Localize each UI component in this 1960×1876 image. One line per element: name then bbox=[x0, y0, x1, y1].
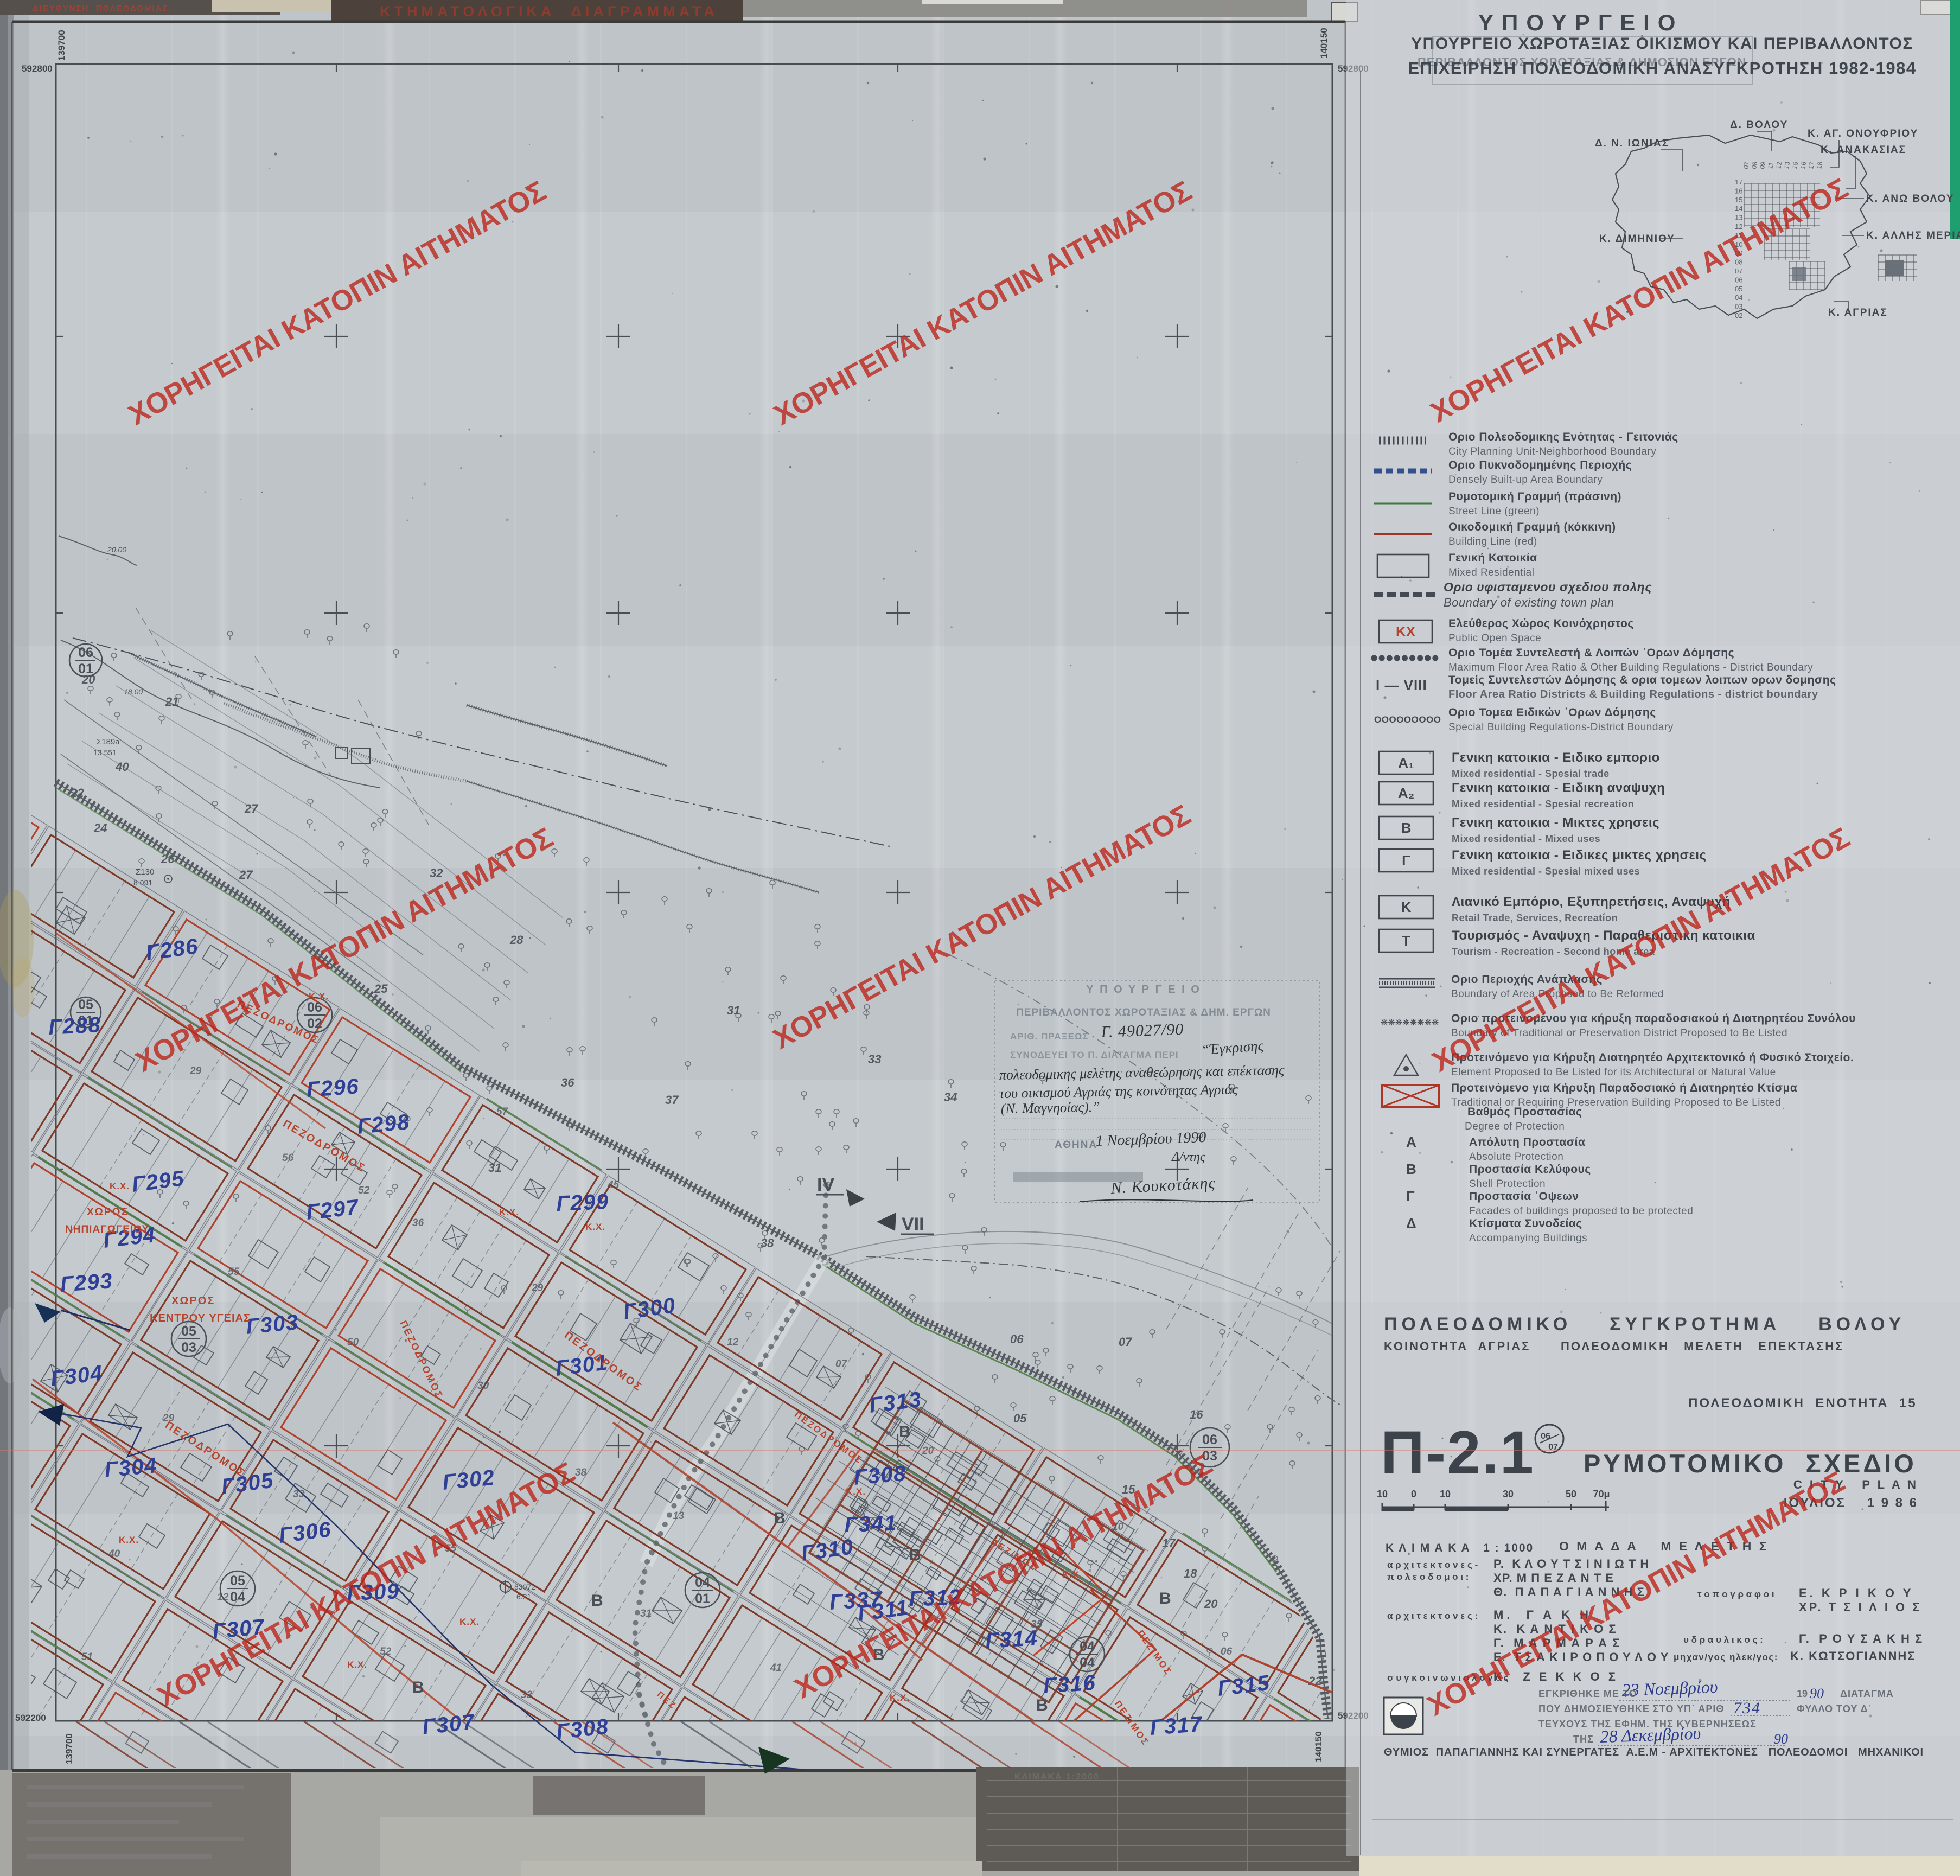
svg-text:ΝΗΠΙΑΓΩΓΕΙΟΥ: ΝΗΠΙΑΓΩΓΕΙΟΥ bbox=[65, 1224, 149, 1235]
svg-text:18: 18 bbox=[1184, 1567, 1197, 1580]
svg-text:T: T bbox=[1402, 933, 1410, 949]
svg-text:Mixed residential - Spesial re: Mixed residential - Spesial recreation bbox=[1452, 799, 1634, 809]
svg-text:33: 33 bbox=[868, 1052, 881, 1066]
svg-text:592800: 592800 bbox=[22, 63, 53, 74]
svg-text:56: 56 bbox=[282, 1152, 294, 1164]
svg-text:Γ315: Γ315 bbox=[1216, 1671, 1272, 1701]
svg-text:ΣΥΝΟΔΕΥΕΙ ΤΟ Π. ΔΙΑΤΑΓΜΑ ΠΕΡΙ: ΣΥΝΟΔΕΥΕΙ ΤΟ Π. ΔΙΑΤΑΓΜΑ ΠΕΡΙ bbox=[1010, 1050, 1179, 1060]
svg-text:18: 18 bbox=[1815, 161, 1824, 170]
svg-text:Κ.Χ.: Κ.Χ. bbox=[459, 1617, 480, 1627]
svg-text:Γ304: Γ304 bbox=[104, 1453, 158, 1482]
svg-text:Δ/ντης: Δ/ντης bbox=[1171, 1150, 1205, 1164]
svg-text:OOOOOOOOO: OOOOOOOOO bbox=[1374, 714, 1441, 725]
svg-text:Κ. ΚΩΤΣΟΓΙΑΝΝΗΣ: Κ. ΚΩΤΣΟΓΙΑΝΝΗΣ bbox=[1790, 1649, 1916, 1663]
svg-text:18.00: 18.00 bbox=[124, 687, 143, 696]
svg-text:36: 36 bbox=[561, 1076, 574, 1089]
svg-text:ΚΧ: ΚΧ bbox=[1396, 623, 1416, 640]
svg-text:24: 24 bbox=[93, 821, 107, 835]
svg-text:06: 06 bbox=[307, 1000, 322, 1015]
svg-text:Κ. ΑΓΡΙΑΣ: Κ. ΑΓΡΙΑΣ bbox=[1828, 307, 1888, 318]
svg-text:03: 03 bbox=[181, 1340, 196, 1355]
svg-text:6.21: 6.21 bbox=[516, 1592, 531, 1601]
svg-text:05: 05 bbox=[1013, 1412, 1027, 1425]
svg-text:21: 21 bbox=[165, 695, 178, 709]
svg-text:10: 10 bbox=[1440, 1489, 1451, 1499]
svg-text:15: 15 bbox=[1791, 161, 1799, 170]
svg-text:B: B bbox=[1401, 820, 1412, 836]
svg-text:04: 04 bbox=[1735, 293, 1742, 302]
svg-text:Γενικη κατοικια - Ειδικο εμπορ: Γενικη κατοικια - Ειδικο εμποριο bbox=[1452, 750, 1660, 765]
svg-text:Α: Α bbox=[1406, 1134, 1416, 1150]
svg-text:15: 15 bbox=[1735, 196, 1742, 204]
svg-text:A₂: A₂ bbox=[1398, 785, 1414, 801]
svg-text:70μ: 70μ bbox=[1593, 1489, 1610, 1499]
svg-text:ΚΟΙΝΟΤΗΤΑ ΑΓΡΙΑΣ: ΚΟΙΝΟΤΗΤΑ ΑΓΡΙΑΣ bbox=[1384, 1339, 1530, 1353]
svg-text:06: 06 bbox=[78, 645, 93, 660]
svg-text:140150: 140150 bbox=[1319, 28, 1329, 59]
svg-text:139700: 139700 bbox=[56, 30, 67, 61]
svg-text:05: 05 bbox=[230, 1573, 245, 1588]
svg-text:ΧΟΡΗΓΕΙΤΑΙ ΚΑΤΟΠΙΝ ΑΙΤΗΜΑΤΟΣ: ΧΟΡΗΓΕΙΤΑΙ ΚΑΤΟΠΙΝ ΑΙΤΗΜΑΤΟΣ bbox=[769, 175, 1197, 431]
svg-text:52: 52 bbox=[358, 1185, 370, 1196]
svg-text:20.00: 20.00 bbox=[107, 545, 126, 554]
svg-text:ΠΟΥ ΔΗΜΟΣΙΕΥΘΗΚΕ ΣΤΟ ΥΠʾ ΑΡΙΘ: ΠΟΥ ΔΗΜΟΣΙΕΥΘΗΚΕ ΣΤΟ ΥΠʾ ΑΡΙΘ bbox=[1538, 1703, 1724, 1714]
svg-text:K: K bbox=[1401, 899, 1412, 915]
svg-text:07: 07 bbox=[1735, 267, 1742, 275]
svg-text:07: 07 bbox=[1742, 161, 1751, 170]
svg-text:Special Building Regulations-D: Special Building Regulations-District Bo… bbox=[1448, 722, 1674, 733]
svg-text:ΘΥΜΙΟΣ ΠΑΠΑΓΙΑΝΝΗΣ ΚΑΙ ΣΥΝΕΡΓ: ΘΥΜΙΟΣ ΠΑΠΑΓΙΑΝΝΗΣ ΚΑΙ ΣΥΝΕΡΓΑΤΕΣ Α.Ε.Μ … bbox=[1384, 1746, 1924, 1758]
svg-text:ΚΕΝΤΡΟΥ ΥΓΕΙΑΣ: ΚΕΝΤΡΟΥ ΥΓΕΙΑΣ bbox=[150, 1312, 251, 1324]
svg-text:08: 08 bbox=[1750, 161, 1759, 170]
svg-text:“Έγκρισης: “Έγκρισης bbox=[1201, 1037, 1265, 1058]
svg-text:Building Line (red): Building Line (red) bbox=[1448, 536, 1537, 547]
svg-text:ΠΕΖ/ΜΟΣ: ΠΕΖ/ΜΟΣ bbox=[1135, 1628, 1174, 1677]
svg-text:Shell Protection: Shell Protection bbox=[1469, 1178, 1546, 1190]
svg-text:Οριο Πυκνοδομημένης Περιοχής: Οριο Πυκνοδομημένης Περιοχής bbox=[1448, 459, 1632, 471]
svg-text:ΠΕΖΟΔΡΟΜΟΣ: ΠΕΖΟΔΡΟΜΟΣ bbox=[163, 1419, 248, 1480]
svg-text:Ρυμοτομική Γραμμή (πράσινη): Ρυμοτομική Γραμμή (πράσινη) bbox=[1448, 490, 1621, 503]
svg-text:ΑΡΙΘ. ΠΡΑΞΕΩΣ: ΑΡΙΘ. ΠΡΑΞΕΩΣ bbox=[1010, 1031, 1089, 1042]
svg-text:Street Line (green): Street Line (green) bbox=[1448, 506, 1540, 517]
svg-text:ΠΕΖΟΔΡΟΜΟΣ: ΠΕΖΟΔΡΟΜΟΣ bbox=[793, 1409, 865, 1466]
svg-text:B: B bbox=[1159, 1590, 1171, 1607]
svg-text:Γ: Γ bbox=[1402, 852, 1410, 869]
svg-text:05: 05 bbox=[78, 997, 93, 1012]
svg-text:Ε. Κ Ρ Ι Κ Ο Υ: Ε. Κ Ρ Ι Κ Ο Υ bbox=[1799, 1586, 1913, 1600]
svg-text:16: 16 bbox=[1735, 187, 1742, 195]
svg-text:07: 07 bbox=[835, 1358, 848, 1370]
svg-text:27: 27 bbox=[239, 868, 253, 882]
svg-text:Κ. ΑΝΑΚΑΣΙΑΣ: Κ. ΑΝΑΚΑΣΙΑΣ bbox=[1821, 144, 1906, 156]
svg-text:Γ308: Γ308 bbox=[555, 1715, 610, 1744]
svg-text:Οριο υφισταμενου σχεδιου πολης: Οριο υφισταμενου σχεδιου πολης bbox=[1444, 580, 1652, 594]
svg-text:Mixed residential - Mixed uses: Mixed residential - Mixed uses bbox=[1452, 833, 1600, 844]
svg-text:Mixed residential - Spesial mi: Mixed residential - Spesial mixed uses bbox=[1452, 866, 1640, 877]
svg-text:ΠΟΛΕΟΔΟΜΙΚΗ ΕΝΟΤΗΤΑ 15: ΠΟΛΕΟΔΟΜΙΚΗ ΕΝΟΤΗΤΑ 15 bbox=[1688, 1396, 1917, 1411]
svg-text:02: 02 bbox=[1735, 311, 1742, 320]
svg-text:Γ316: Γ316 bbox=[1043, 1671, 1097, 1698]
svg-text:Γ308: Γ308 bbox=[853, 1462, 908, 1490]
svg-text:Γ341: Γ341 bbox=[844, 1511, 898, 1537]
svg-text:Accompanying Buildings: Accompanying Buildings bbox=[1469, 1233, 1587, 1244]
svg-text:29: 29 bbox=[162, 1413, 175, 1424]
svg-text:06: 06 bbox=[1735, 276, 1742, 284]
svg-text:Κ.Χ.: Κ.Χ. bbox=[1062, 1569, 1082, 1580]
svg-text:Δ. Ν. ΙΩΝΙΑΣ: Δ. Ν. ΙΩΝΙΑΣ bbox=[1595, 138, 1669, 149]
svg-text:33: 33 bbox=[521, 1689, 533, 1701]
svg-text:Γ288: Γ288 bbox=[48, 1013, 101, 1039]
svg-text:Σ130: Σ130 bbox=[136, 867, 154, 877]
svg-text:592200: 592200 bbox=[15, 1713, 46, 1723]
svg-text:12: 12 bbox=[1774, 161, 1783, 170]
svg-text:28 Δεκεμβρίου: 28 Δεκεμβρίου bbox=[1600, 1724, 1701, 1746]
svg-text:VII: VII bbox=[902, 1214, 924, 1235]
svg-text:Οριο Τομεα Ειδικών ʾΟρων Δόμησ: Οριο Τομεα Ειδικών ʾΟρων Δόμησης bbox=[1448, 706, 1656, 719]
svg-text:10: 10 bbox=[1377, 1489, 1388, 1499]
svg-text:❋❋❋❋❋❋❋❋: ❋❋❋❋❋❋❋❋ bbox=[1381, 1018, 1439, 1028]
svg-text:34: 34 bbox=[944, 1090, 957, 1104]
svg-text:35: 35 bbox=[1031, 1619, 1043, 1630]
svg-text:IV: IV bbox=[817, 1175, 834, 1195]
svg-text:ΠΟΛΕΟΔΟΜΙΚΗ ΜΕΛΕΤΗ ΕΠΕΚΤΑΣ: ΠΟΛΕΟΔΟΜΙΚΗ ΜΕΛΕΤΗ ΕΠΕΚΤΑΣΗΣ bbox=[1561, 1339, 1844, 1353]
svg-text:Public Open Space: Public Open Space bbox=[1448, 633, 1541, 644]
svg-text:05: 05 bbox=[181, 1324, 196, 1339]
svg-text:140150: 140150 bbox=[1313, 1731, 1324, 1762]
svg-text:Γ303: Γ303 bbox=[245, 1310, 300, 1339]
svg-text:Γ305: Γ305 bbox=[220, 1469, 275, 1499]
svg-text:139700: 139700 bbox=[64, 1733, 74, 1764]
svg-text:Οικοδομική Γραμμή (κόκκινη): Οικοδομική Γραμμή (κόκκινη) bbox=[1448, 521, 1616, 533]
svg-text:29: 29 bbox=[531, 1282, 544, 1294]
svg-text:ΧΡ. Τ Σ Ι Λ Ι Ο Σ: ΧΡ. Τ Σ Ι Λ Ι Ο Σ bbox=[1799, 1600, 1921, 1614]
svg-text:Γ298: Γ298 bbox=[356, 1110, 411, 1139]
svg-text:55: 55 bbox=[228, 1266, 240, 1278]
svg-text:Retail Trade, Services, Recrea: Retail Trade, Services, Recreation bbox=[1452, 913, 1618, 923]
svg-text:Προτεινόμενο για Κήρυξη Παραδο: Προτεινόμενο για Κήρυξη Παραδοσιακό ή Δι… bbox=[1451, 1082, 1797, 1094]
svg-text:Κ.Χ.: Κ.Χ. bbox=[110, 1181, 130, 1191]
svg-text:8 091: 8 091 bbox=[133, 878, 152, 887]
svg-text:Υ Π Ο Υ Ρ Γ Ε Ι Ο: Υ Π Ο Υ Ρ Γ Ε Ι Ο bbox=[1086, 984, 1201, 996]
svg-text:04: 04 bbox=[230, 1590, 245, 1605]
svg-text:Γενική Κατοικία: Γενική Κατοικία bbox=[1448, 552, 1537, 564]
svg-text:36: 36 bbox=[412, 1217, 424, 1229]
svg-text:Γ286: Γ286 bbox=[144, 934, 200, 965]
svg-text:Σ189a: Σ189a bbox=[97, 737, 120, 746]
svg-text:α ρ χ ι τ ε κ τ ο ν ε ς -: α ρ χ ι τ ε κ τ ο ν ε ς - bbox=[1387, 1560, 1478, 1570]
svg-text:Degree of Protection: Degree of Protection bbox=[1465, 1121, 1565, 1132]
svg-text:Προστασία Κελύφους: Προστασία Κελύφους bbox=[1469, 1163, 1591, 1176]
svg-text:Κτίσματα Συνοδείας: Κτίσματα Συνοδείας bbox=[1469, 1217, 1582, 1230]
svg-text:50: 50 bbox=[347, 1337, 359, 1348]
svg-text:Απόλυτη Προστασία: Απόλυτη Προστασία bbox=[1469, 1136, 1585, 1148]
svg-text:Γενικη κατοικια - Ειδικες μικτ: Γενικη κατοικια - Ειδικες μικτες χρησεις bbox=[1452, 848, 1706, 863]
svg-text:Κ.Χ.: Κ.Χ. bbox=[119, 1535, 139, 1545]
svg-text:Ελεύθερος Χώρος Κοινόχρηστος: Ελεύθερος Χώρος Κοινόχρηστος bbox=[1448, 617, 1634, 630]
svg-text:37: 37 bbox=[665, 1093, 679, 1107]
svg-text:του οικισμού Αγριάς της κοινότ: του οικισμού Αγριάς της κοινότητας Αγριά… bbox=[999, 1081, 1238, 1101]
svg-text:01: 01 bbox=[78, 661, 93, 677]
svg-text:16: 16 bbox=[1190, 1408, 1203, 1421]
svg-text:τ ο π ο γ ρ α φ ο ι: τ ο π ο γ ρ α φ ο ι bbox=[1697, 1589, 1774, 1599]
svg-text:28: 28 bbox=[509, 933, 523, 947]
svg-text:Βαθμός Προστασίας: Βαθμός Προστασίας bbox=[1467, 1106, 1582, 1118]
svg-text:Π-2.1: Π-2.1 bbox=[1381, 1419, 1535, 1486]
svg-text:B: B bbox=[412, 1679, 424, 1696]
svg-text:Κ.Χ.: Κ.Χ. bbox=[347, 1660, 367, 1670]
svg-text:04: 04 bbox=[695, 1575, 710, 1590]
svg-text:38: 38 bbox=[761, 1236, 774, 1250]
svg-text:09: 09 bbox=[1758, 161, 1767, 170]
svg-text:30: 30 bbox=[477, 1380, 489, 1392]
svg-text:Γενικη κατοικια - Ειδικη αναψυ: Γενικη κατοικια - Ειδικη αναψυχη bbox=[1452, 781, 1665, 795]
svg-text:06: 06 bbox=[1202, 1432, 1217, 1447]
svg-text:A₁: A₁ bbox=[1398, 755, 1414, 771]
svg-text:12: 12 bbox=[217, 1592, 229, 1603]
svg-text:14: 14 bbox=[1735, 205, 1742, 213]
svg-text:ΚΤΗΜΑΤΟΛΟΓΙΚΑ ΔΙΑΓΡΑΜΜΑΤΑ: ΚΤΗΜΑΤΟΛΟΓΙΚΑ ΔΙΑΓΡΑΜΜΑΤΑ bbox=[380, 3, 718, 20]
svg-text:Mixed residential - Spesial tr: Mixed residential - Spesial trade bbox=[1452, 768, 1610, 779]
svg-text:ΥΠΟΥΡΓΕΙΟ: ΥΠΟΥΡΓΕΙΟ bbox=[1478, 10, 1683, 35]
svg-text:Γ317: Γ317 bbox=[1149, 1712, 1203, 1740]
svg-text:Κ. ΑΝΩ ΒΟΛΟΥ: Κ. ΑΝΩ ΒΟΛΟΥ bbox=[1866, 193, 1955, 205]
svg-text:Γ: Γ bbox=[1406, 1188, 1415, 1204]
svg-text:Densely Built-up Area Boundary: Densely Built-up Area Boundary bbox=[1448, 474, 1603, 486]
svg-text:City Planning Unit-Neighborhoo: City Planning Unit-Neighborhood Boundary bbox=[1448, 446, 1656, 457]
svg-text:Ρ. Κ Λ Ο Υ Τ Σ Ι Ν Ι Ω Τ Η: Ρ. Κ Λ Ο Υ Τ Σ Ι Ν Ι Ω Τ Η bbox=[1493, 1557, 1649, 1571]
svg-text:B: B bbox=[909, 1546, 921, 1564]
svg-text:Τομείς Συντελεστών Δόμησης & ο: Τομείς Συντελεστών Δόμησης & ορια τομεων… bbox=[1448, 674, 1836, 686]
svg-text:Κ.Χ.: Κ.Χ. bbox=[846, 1486, 866, 1497]
svg-text:12: 12 bbox=[727, 1337, 739, 1348]
svg-text:Προστασία ʾΟψεων: Προστασία ʾΟψεων bbox=[1469, 1190, 1579, 1203]
svg-text:Γ299: Γ299 bbox=[556, 1190, 610, 1216]
svg-text:Element Proposed to Be Listed: Element Proposed to Be Listed for its Ar… bbox=[1451, 1067, 1776, 1078]
svg-text:13: 13 bbox=[1735, 214, 1742, 222]
svg-text:07: 07 bbox=[1119, 1335, 1133, 1349]
svg-text:41: 41 bbox=[770, 1662, 782, 1674]
svg-text:02: 02 bbox=[307, 1016, 322, 1031]
svg-text:ΔΙΑΤΑΓΜΑ: ΔΙΑΤΑΓΜΑ bbox=[1840, 1688, 1894, 1699]
svg-text:23 Νοεμβρίου: 23 Νοεμβρίου bbox=[1621, 1677, 1718, 1700]
svg-text:13: 13 bbox=[673, 1510, 685, 1522]
svg-text:Γ307: Γ307 bbox=[421, 1710, 476, 1739]
svg-text:01: 01 bbox=[695, 1591, 710, 1606]
svg-text:Γ304: Γ304 bbox=[49, 1361, 105, 1391]
svg-text:Γ302: Γ302 bbox=[441, 1465, 496, 1495]
svg-text:Maximum Floor Area Ratio & Oth: Maximum Floor Area Ratio & Other Buildin… bbox=[1448, 662, 1813, 673]
svg-text:13: 13 bbox=[1783, 161, 1791, 170]
svg-text:04: 04 bbox=[1080, 1655, 1095, 1670]
svg-text:Γ337: Γ337 bbox=[829, 1587, 883, 1615]
svg-text:50: 50 bbox=[1566, 1489, 1576, 1499]
svg-text:Γ293: Γ293 bbox=[59, 1269, 113, 1297]
svg-text:90: 90 bbox=[1810, 1686, 1824, 1701]
svg-text:57: 57 bbox=[496, 1106, 509, 1118]
svg-text:83072: 83072 bbox=[514, 1583, 535, 1591]
svg-text:ΠΟΛΕΟΔΟΜΙΚΟ ΣΥΓΚΡΟΤΗΜΑ Β: ΠΟΛΕΟΔΟΜΙΚΟ ΣΥΓΚΡΟΤΗΜΑ ΒΟΛΟΥ bbox=[1384, 1314, 1905, 1335]
svg-text:ΕΠΙΧΕΙΡΗΣΗ ΠΟΛΕΟΔΟΜΙΚΗ ΑΝΑΣΥΓΚ: ΕΠΙΧΕΙΡΗΣΗ ΠΟΛΕΟΔΟΜΙΚΗ ΑΝΑΣΥΓΚΡΟΤΗΣΗ 198… bbox=[1408, 59, 1916, 78]
svg-text:ΔΙΕΥΘΥΝΣΗ ΠΟΛΕΟΔΟΜΙΑΣ: ΔΙΕΥΘΥΝΣΗ ΠΟΛΕΟΔΟΜΙΑΣ bbox=[33, 4, 169, 13]
svg-text:B: B bbox=[899, 1423, 911, 1441]
svg-text:υ δ ρ α υ λ ι κ ο ς :: υ δ ρ α υ λ ι κ ο ς : bbox=[1683, 1635, 1763, 1645]
svg-text:17: 17 bbox=[1807, 161, 1816, 170]
svg-text:31: 31 bbox=[640, 1608, 652, 1619]
svg-text:(Ν. Μαγνησίας).”: (Ν. Μαγνησίας).” bbox=[1001, 1099, 1100, 1116]
svg-text:Προτεινόμενο για Κήρυξη Διατηρ: Προτεινόμενο για Κήρυξη Διατηρητέο Αρχιτ… bbox=[1451, 1051, 1854, 1064]
svg-text:03: 03 bbox=[1735, 303, 1742, 311]
svg-text:Γ296: Γ296 bbox=[306, 1074, 360, 1102]
svg-text:38: 38 bbox=[575, 1467, 587, 1478]
svg-text:ΧΩΡΟΣ: ΧΩΡΟΣ bbox=[171, 1295, 215, 1307]
svg-text:30: 30 bbox=[1503, 1489, 1514, 1499]
svg-text:51: 51 bbox=[81, 1651, 93, 1663]
svg-text:B: B bbox=[774, 1509, 786, 1527]
svg-text:06: 06 bbox=[1221, 1646, 1233, 1657]
svg-text:25: 25 bbox=[374, 982, 388, 996]
svg-text:ΠΕΡΙΒΑΛΛΟΝΤΟΣ ΧΩΡΟΤΑΞΙΑΣ &: ΠΕΡΙΒΑΛΛΟΝΤΟΣ ΧΩΡΟΤΑΞΙΑΣ & ΔΗΜ. ΕΡΓΩΝ bbox=[1016, 1007, 1271, 1018]
svg-text:ΡΥΜΟΤΟΜΙΚΟ ΣΧΕΔΙΟ: ΡΥΜΟΤΟΜΙΚΟ ΣΧΕΔΙΟ bbox=[1584, 1449, 1917, 1478]
svg-text:Δ. ΒΟΛΟΥ: Δ. ΒΟΛΟΥ bbox=[1730, 119, 1788, 131]
svg-text:40: 40 bbox=[115, 760, 129, 774]
svg-text:Κ.Χ.: Κ.Χ. bbox=[309, 991, 329, 1001]
svg-text:27: 27 bbox=[244, 802, 259, 815]
svg-text:33: 33 bbox=[293, 1489, 305, 1500]
svg-text:I — VIII: I — VIII bbox=[1376, 677, 1427, 693]
svg-text:Δ: Δ bbox=[1406, 1215, 1416, 1231]
svg-text:Οριο Τομέα Συντελεστή & Λοιπών: Οριο Τομέα Συντελεστή & Λοιπών ʾΟρων Δόμ… bbox=[1448, 647, 1734, 659]
svg-text:Mixed Residential: Mixed Residential bbox=[1448, 567, 1534, 578]
svg-text:1 Νοεμβρίου 1990: 1 Νοεμβρίου 1990 bbox=[1095, 1129, 1206, 1150]
svg-text:45: 45 bbox=[607, 1179, 620, 1191]
svg-text:Γ297: Γ297 bbox=[305, 1195, 360, 1224]
svg-text:ΑΘΗΝΑ: ΑΘΗΝΑ bbox=[1055, 1139, 1097, 1151]
svg-text:πολεοδομικης μελέτης αναθεώρησ: πολεοδομικης μελέτης αναθεώρησης και επέ… bbox=[999, 1062, 1285, 1083]
svg-text:Κ. ΑΛΛΗΣ ΜΕΡΙΑΣ: Κ. ΑΛΛΗΣ ΜΕΡΙΑΣ bbox=[1866, 230, 1960, 241]
svg-text:Γ295: Γ295 bbox=[131, 1166, 186, 1197]
svg-text:0: 0 bbox=[1411, 1489, 1416, 1499]
svg-text:Οριο Πολεοδομικης Ενότητας - Γ: Οριο Πολεοδομικης Ενότητας - Γειτονιάς bbox=[1448, 431, 1678, 443]
svg-text:π ο λ ε ο δ ο μ ο ι :: π ο λ ε ο δ ο μ ο ι : bbox=[1387, 1572, 1469, 1582]
svg-text:Β: Β bbox=[1406, 1161, 1416, 1177]
svg-text:05: 05 bbox=[1735, 285, 1742, 293]
svg-text:Κ.Χ.: Κ.Χ. bbox=[585, 1222, 605, 1232]
svg-text:734: 734 bbox=[1733, 1699, 1761, 1717]
svg-text:16: 16 bbox=[1799, 161, 1808, 170]
svg-text:Τουρισμός - Αναψυχη - Παραθερι: Τουρισμός - Αναψυχη - Παραθεριστικη κατο… bbox=[1452, 928, 1755, 943]
svg-text:29: 29 bbox=[189, 1065, 202, 1077]
svg-text:20: 20 bbox=[1204, 1597, 1218, 1611]
svg-text:90: 90 bbox=[1774, 1731, 1788, 1747]
svg-text:52: 52 bbox=[380, 1646, 392, 1657]
svg-text:B: B bbox=[1036, 1696, 1048, 1714]
svg-text:ΦΥΛΛΟ ΤΟΥ Δʾ: ΦΥΛΛΟ ΤΟΥ Δʾ bbox=[1797, 1703, 1872, 1714]
svg-text:Γενικη κατοικια - Μικτες χρησε: Γενικη κατοικια - Μικτες χρησεις bbox=[1452, 815, 1659, 830]
svg-text:Floor Area Ratio Districts & B: Floor Area Ratio Districts & Building Re… bbox=[1448, 688, 1818, 700]
svg-text:04: 04 bbox=[1080, 1639, 1095, 1654]
svg-text:Facades of buildings proposed: Facades of buildings proposed to be prot… bbox=[1469, 1205, 1693, 1217]
svg-text:Κ Λ Ι Μ Α Κ Α 1 : 1000: Κ Λ Ι Μ Α Κ Α 1 : 1000 bbox=[1386, 1542, 1534, 1554]
svg-text:Κ.Χ.: Κ.Χ. bbox=[499, 1207, 519, 1217]
svg-text:ΤΗΣ: ΤΗΣ bbox=[1573, 1734, 1594, 1745]
svg-text:ΧΡ. Μ Π Ε Ζ Α Ν Τ Ε: ΧΡ. Μ Π Ε Ζ Α Ν Τ Ε bbox=[1493, 1571, 1614, 1585]
svg-text:Κ. ΑΓ. ΟΝΟΥΦΡΙΟΥ: Κ. ΑΓ. ΟΝΟΥΦΡΙΟΥ bbox=[1808, 128, 1918, 139]
svg-text:ΠΕΖΟΔΡΟΜΟΣ: ΠΕΖΟΔΡΟΜΟΣ bbox=[281, 1118, 368, 1175]
svg-text:Boundary of existing town plan: Boundary of existing town plan bbox=[1444, 596, 1614, 609]
svg-text:40: 40 bbox=[108, 1548, 120, 1560]
svg-text:Κ.Χ.: Κ.Χ. bbox=[890, 1693, 910, 1703]
svg-text:B: B bbox=[591, 1592, 603, 1610]
svg-text:31: 31 bbox=[727, 1004, 740, 1017]
svg-text:Absolute Protection: Absolute Protection bbox=[1469, 1151, 1563, 1163]
svg-text:μηχαν/γος ηλεκ/γος:: μηχαν/γος ηλεκ/γος: bbox=[1674, 1652, 1778, 1662]
svg-text:17: 17 bbox=[1735, 178, 1742, 186]
svg-text:ΧΩΡΟΣ: ΧΩΡΟΣ bbox=[87, 1207, 129, 1218]
svg-text:ΧΟΡΗΓΕΙΤΑΙ ΚΑΤΟΠΙΝ ΑΙΤΗΜΑΤΟΣ: ΧΟΡΗΓΕΙΤΑΙ ΚΑΤΟΠΙΝ ΑΙΤΗΜΑΤΟΣ bbox=[123, 175, 551, 431]
svg-text:19: 19 bbox=[1797, 1688, 1808, 1699]
svg-text:α ρ χ ι τ ε κ τ ο ν ε ς :: α ρ χ ι τ ε κ τ ο ν ε ς : bbox=[1387, 1611, 1478, 1621]
svg-text:ΚΛΙΜΑΚΑ 1:2000: ΚΛΙΜΑΚΑ 1:2000 bbox=[1014, 1772, 1100, 1782]
svg-text:Γ. Ρ Ο Υ Σ Α Κ Η Σ: Γ. Ρ Ο Υ Σ Α Κ Η Σ bbox=[1799, 1632, 1923, 1645]
svg-text:Γ306: Γ306 bbox=[278, 1517, 333, 1548]
svg-text:Γ. 49027/90: Γ. 49027/90 bbox=[1100, 1020, 1184, 1041]
svg-text:06: 06 bbox=[1541, 1432, 1550, 1441]
svg-text:06: 06 bbox=[1010, 1332, 1024, 1346]
